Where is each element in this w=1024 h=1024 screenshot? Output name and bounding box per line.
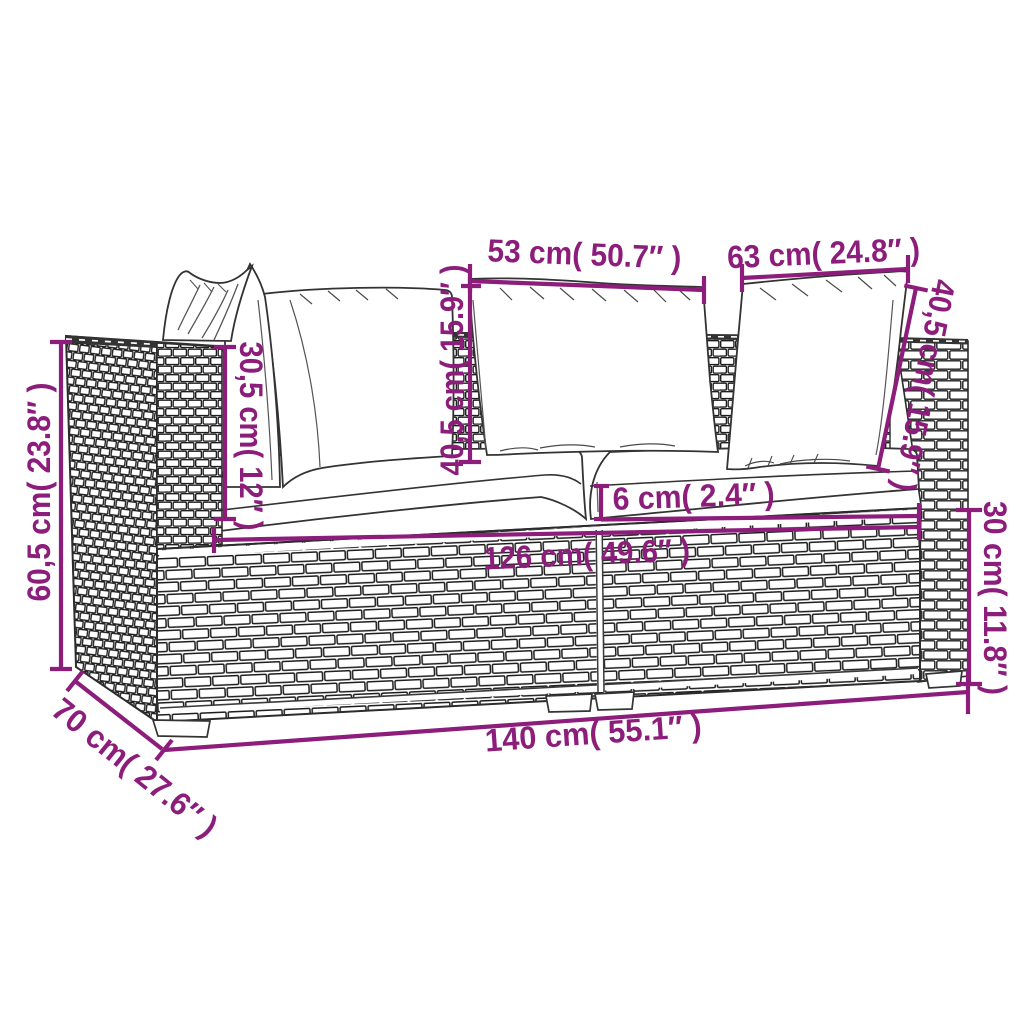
svg-text:30,5 cm( 12″ ): 30,5 cm( 12″ ) xyxy=(233,342,269,531)
svg-text:6 cm( 2.4″ ): 6 cm( 2.4″ ) xyxy=(612,475,775,517)
svg-text:60,5 cm( 23.8″ ): 60,5 cm( 23.8″ ) xyxy=(21,383,57,602)
svg-text:53 cm( 50.7″ ): 53 cm( 50.7″ ) xyxy=(487,232,682,275)
svg-text:40,5 cm( 15.9″ ): 40,5 cm( 15.9″ ) xyxy=(434,265,470,476)
svg-text:30 cm( 11.8″ ): 30 cm( 11.8″ ) xyxy=(977,501,1013,695)
